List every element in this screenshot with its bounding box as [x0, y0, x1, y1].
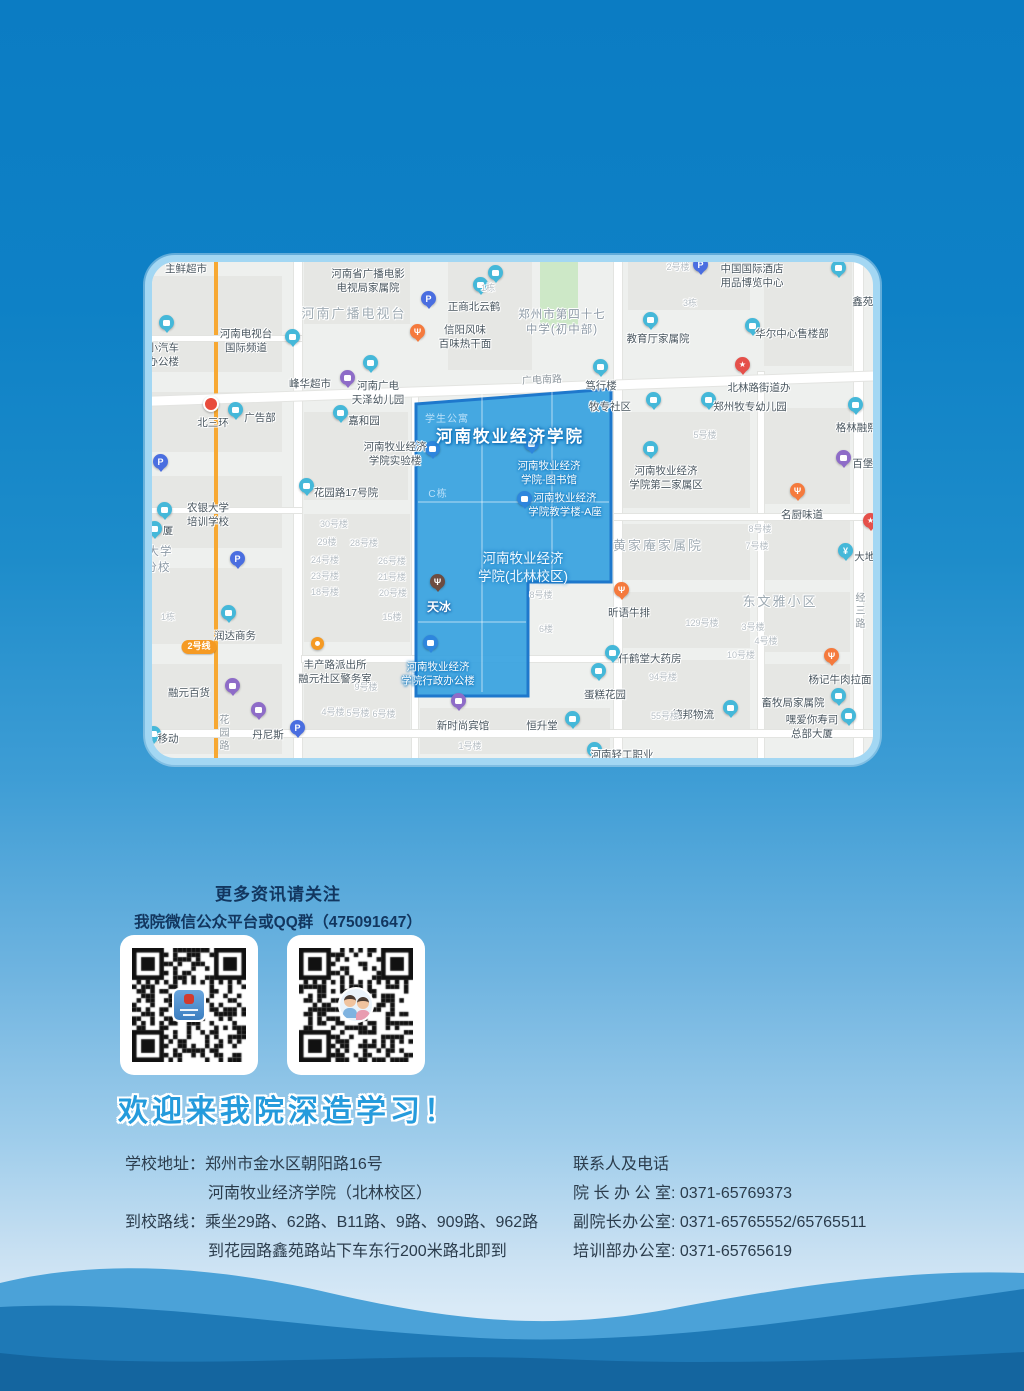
- map-label: 格林融熙国: [836, 422, 873, 436]
- map-pin-star-icon: ★: [735, 357, 750, 372]
- map-label: 河南牧业经济学院: [436, 427, 584, 448]
- map-label: 3栋: [683, 298, 697, 310]
- map-label: 仟鹤堂大药房: [619, 653, 682, 667]
- map-label: 6楼: [539, 624, 553, 636]
- map-pin-purple-icon: [225, 678, 240, 693]
- map-pin-teal-icon: [643, 312, 658, 327]
- map-label: 经三路: [852, 592, 865, 631]
- map-label: C栋: [428, 488, 447, 501]
- map-label: 9号楼: [354, 682, 377, 694]
- map-pin-orange-icon: Ψ: [614, 582, 629, 597]
- map-label: 5号楼: [693, 430, 716, 442]
- map-pin-teal-icon: [159, 315, 174, 330]
- map-pin-police-icon: [311, 637, 324, 650]
- map-label: 中国国际酒店用品博览中心: [721, 263, 784, 290]
- brochure-back-page: ΨΨΨΨ★★PPPPPΨ¥主鲜超市河南省广播电影电视局家属院河南广播电视台正商北…: [0, 0, 1024, 1391]
- map-label: 牧专社区: [589, 401, 631, 415]
- map-label: 7号楼: [745, 541, 768, 553]
- follow-us-block: 更多资讯请关注 我院微信公众平台或QQ群（475091647）: [118, 880, 438, 932]
- contact-row: 学校地址：郑州市金水区朝阳路16号: [125, 1150, 555, 1179]
- map-label: 24号楼: [311, 555, 339, 567]
- map-pin-teal-icon: [593, 359, 608, 374]
- follow-title: 更多资讯请关注: [118, 880, 438, 905]
- map-pin-teal-icon: [228, 402, 243, 417]
- follow-subtitle: 我院微信公众平台或QQ群（475091647）: [118, 910, 438, 932]
- map-pin-p-icon: P: [230, 551, 245, 566]
- qq-group-avatar: [338, 987, 374, 1023]
- map-label: 主鲜超市: [165, 263, 207, 277]
- map-pin-teal-icon: [723, 700, 738, 715]
- map-label: 北林路街道办: [728, 382, 791, 396]
- map-pin-orange-icon: Ψ: [824, 648, 839, 663]
- contact-row: 河南牧业经济学院（北林校区）: [125, 1179, 555, 1208]
- map-label: 30号楼: [320, 519, 348, 531]
- contact-row: 副院长办公室: 0371-65765552/65765511: [573, 1208, 973, 1237]
- map-label: 河南牧业经济学院(北林校区): [478, 550, 568, 585]
- map-label: 2号线: [181, 640, 216, 654]
- map-pin-purple-icon: [836, 450, 851, 465]
- map-label: 畜牧局家属院: [762, 697, 825, 711]
- map-label: 1号楼: [458, 741, 481, 753]
- map-pin-teal-icon: [591, 663, 606, 678]
- map-label: 东文雅小区: [742, 594, 817, 611]
- map-label: 名厨味道: [781, 509, 823, 523]
- contact-row: 到校路线：乘坐29路、62路、B11路、9路、909路、962路: [125, 1208, 555, 1237]
- map-pin-reddot-icon: [203, 396, 219, 412]
- map-label: 嘿爱你寿司总部大厦: [786, 714, 839, 741]
- map-label: 融元百货: [168, 687, 210, 701]
- map-label: 鑫苑金: [852, 296, 873, 310]
- map-label: 大学: [152, 545, 173, 560]
- map-pin-teal-icon: [841, 708, 856, 723]
- map-label: 4号楼: [321, 707, 344, 719]
- map-label: 河南省广播电影电视局家属院: [331, 268, 405, 295]
- map-pin-purple-icon: [251, 702, 266, 717]
- map-label: 29楼: [317, 537, 336, 549]
- map-label: 15楼: [382, 612, 401, 624]
- map-label: 嘉和园: [348, 415, 380, 429]
- map-pin-p-icon: P: [290, 720, 305, 735]
- wechat-qr-code: [120, 935, 258, 1075]
- map-label: 20号楼: [379, 588, 407, 600]
- map-label: 21号楼: [378, 572, 406, 584]
- map-label: 昕语牛排: [608, 607, 650, 621]
- map-label: 河南广播电视台: [301, 306, 406, 323]
- map-pin-teal-icon: [643, 441, 658, 456]
- map-pin-teal-icon: [831, 688, 846, 703]
- map-pin-teal-icon: [363, 355, 378, 370]
- map-label: 94号楼: [649, 672, 677, 684]
- map-label: 10号楼: [727, 650, 755, 662]
- map-pin-blue-icon: [423, 635, 438, 650]
- welcome-slogan: 欢迎来我院深造学习！: [118, 1086, 458, 1130]
- map-label: 信阳风味百味热干面: [439, 324, 492, 351]
- map-label: 移动: [158, 733, 179, 747]
- map-label: 天冰: [427, 600, 451, 616]
- map-pin-teal-icon: [848, 397, 863, 412]
- map-label: 129号楼: [685, 618, 718, 630]
- map-label: 蛋糕花园: [584, 689, 626, 703]
- map-pin-teal-icon: [299, 478, 314, 493]
- qq-group-qr-code: [287, 935, 425, 1075]
- map-label: 北三环: [197, 417, 229, 431]
- map-pin-orange-icon: Ψ: [410, 324, 425, 339]
- map-pin-p-icon: P: [153, 454, 168, 469]
- map-pin-teal-icon: [488, 265, 503, 280]
- map-label: 峰华超市: [289, 378, 331, 392]
- map-label: 郑州市第四十七中学(初中部): [518, 308, 606, 338]
- map-label: 1栋: [161, 612, 175, 624]
- map-label: 23号楼: [311, 571, 339, 583]
- map-label: 分校: [152, 561, 171, 576]
- map-label: 润达商务: [214, 630, 256, 644]
- map-label: 4号楼: [754, 636, 777, 648]
- map-label: 1栋: [481, 283, 495, 295]
- map-label: 2号楼: [666, 262, 689, 274]
- map-pin-teal-icon: [157, 502, 172, 517]
- map-label: 26号楼: [378, 556, 406, 568]
- map-label: 18号楼: [311, 587, 339, 599]
- map-label: 笃行楼: [585, 380, 617, 394]
- map-label: 学生公寓: [425, 413, 469, 426]
- map-pin-brown-icon: Ψ: [430, 574, 445, 589]
- map-label: 8号楼: [748, 524, 771, 536]
- map-pin-star-icon: ★: [863, 513, 873, 528]
- map-label: 郑州牧专幼儿园: [713, 401, 787, 415]
- map-canvas: ΨΨΨΨ★★PPPPPΨ¥主鲜超市河南省广播电影电视局家属院河南广播电视台正商北…: [152, 262, 873, 758]
- map-pin-teal-icon: [646, 392, 661, 407]
- wechat-account-logo: [172, 988, 206, 1022]
- map-label: 8号楼: [529, 590, 552, 602]
- map-label: 广电南路: [522, 373, 563, 388]
- map-label: 河南广电天泽幼儿园: [352, 380, 405, 407]
- map-label: 大地时: [854, 551, 873, 565]
- map-label: 3号楼: [741, 622, 764, 634]
- map-label: 河南牧业经济学院行政办公楼: [401, 661, 475, 688]
- map-label: 港小汽车合办公楼: [152, 342, 179, 369]
- map-label: 杨记牛肉拉面: [809, 674, 872, 688]
- map-label: 5号楼: [346, 708, 369, 720]
- map-label: 河南牧业经济学院-图书馆: [518, 460, 581, 487]
- map-label: 河南电视台国际频道: [220, 328, 273, 355]
- map-label: 河南牧业经济学院第二家属区: [629, 465, 703, 492]
- contact-header: 联系人及电话: [573, 1150, 973, 1179]
- map-label: 黄家庵家属院: [613, 538, 703, 555]
- map-label: 华尔中心售楼部: [755, 328, 829, 342]
- bottom-wave-decoration: [0, 1241, 1024, 1391]
- map-label: 河南轻工职业: [591, 749, 654, 758]
- map-label: 厦: [163, 525, 174, 539]
- map-label: 广告部: [244, 412, 276, 426]
- map-pin-teal-icon: [333, 405, 348, 420]
- map-pin-orange-icon: Ψ: [790, 483, 805, 498]
- map-label: 农银大学培训学校: [187, 502, 229, 529]
- map-label: 河南牧业经济学院教学楼-A座: [528, 492, 602, 519]
- campus-location-map: ΨΨΨΨ★★PPPPPΨ¥主鲜超市河南省广播电影电视局家属院河南广播电视台正商北…: [145, 255, 880, 765]
- map-pin-teal-icon: [285, 329, 300, 344]
- map-label: 新时尚宾馆: [437, 720, 490, 734]
- map-label: 丹尼斯: [252, 729, 284, 743]
- map-pin-p-icon: P: [421, 291, 436, 306]
- map-label: 花园路17号院: [314, 487, 378, 501]
- map-label: 花园路: [216, 714, 229, 753]
- map-pin-purple-icon: [451, 693, 466, 708]
- map-label: 恒升堂: [526, 720, 558, 734]
- map-pin-teal-icon: [565, 711, 580, 726]
- map-pin-teal-icon: [221, 605, 236, 620]
- map-label: 教育厅家属院: [627, 333, 690, 347]
- map-pin-bank-icon: ¥: [838, 543, 853, 558]
- map-label: 正商北云鹤: [448, 301, 501, 315]
- map-label: 6号楼: [372, 709, 395, 721]
- map-label: 55号楼: [651, 711, 679, 723]
- contact-row: 院长办公室: 0371-65769373: [573, 1179, 973, 1208]
- map-label: 百堡滋: [852, 458, 873, 472]
- map-label: 河南牧业经济学院实验楼: [364, 441, 427, 468]
- map-label: 28号楼: [350, 538, 378, 550]
